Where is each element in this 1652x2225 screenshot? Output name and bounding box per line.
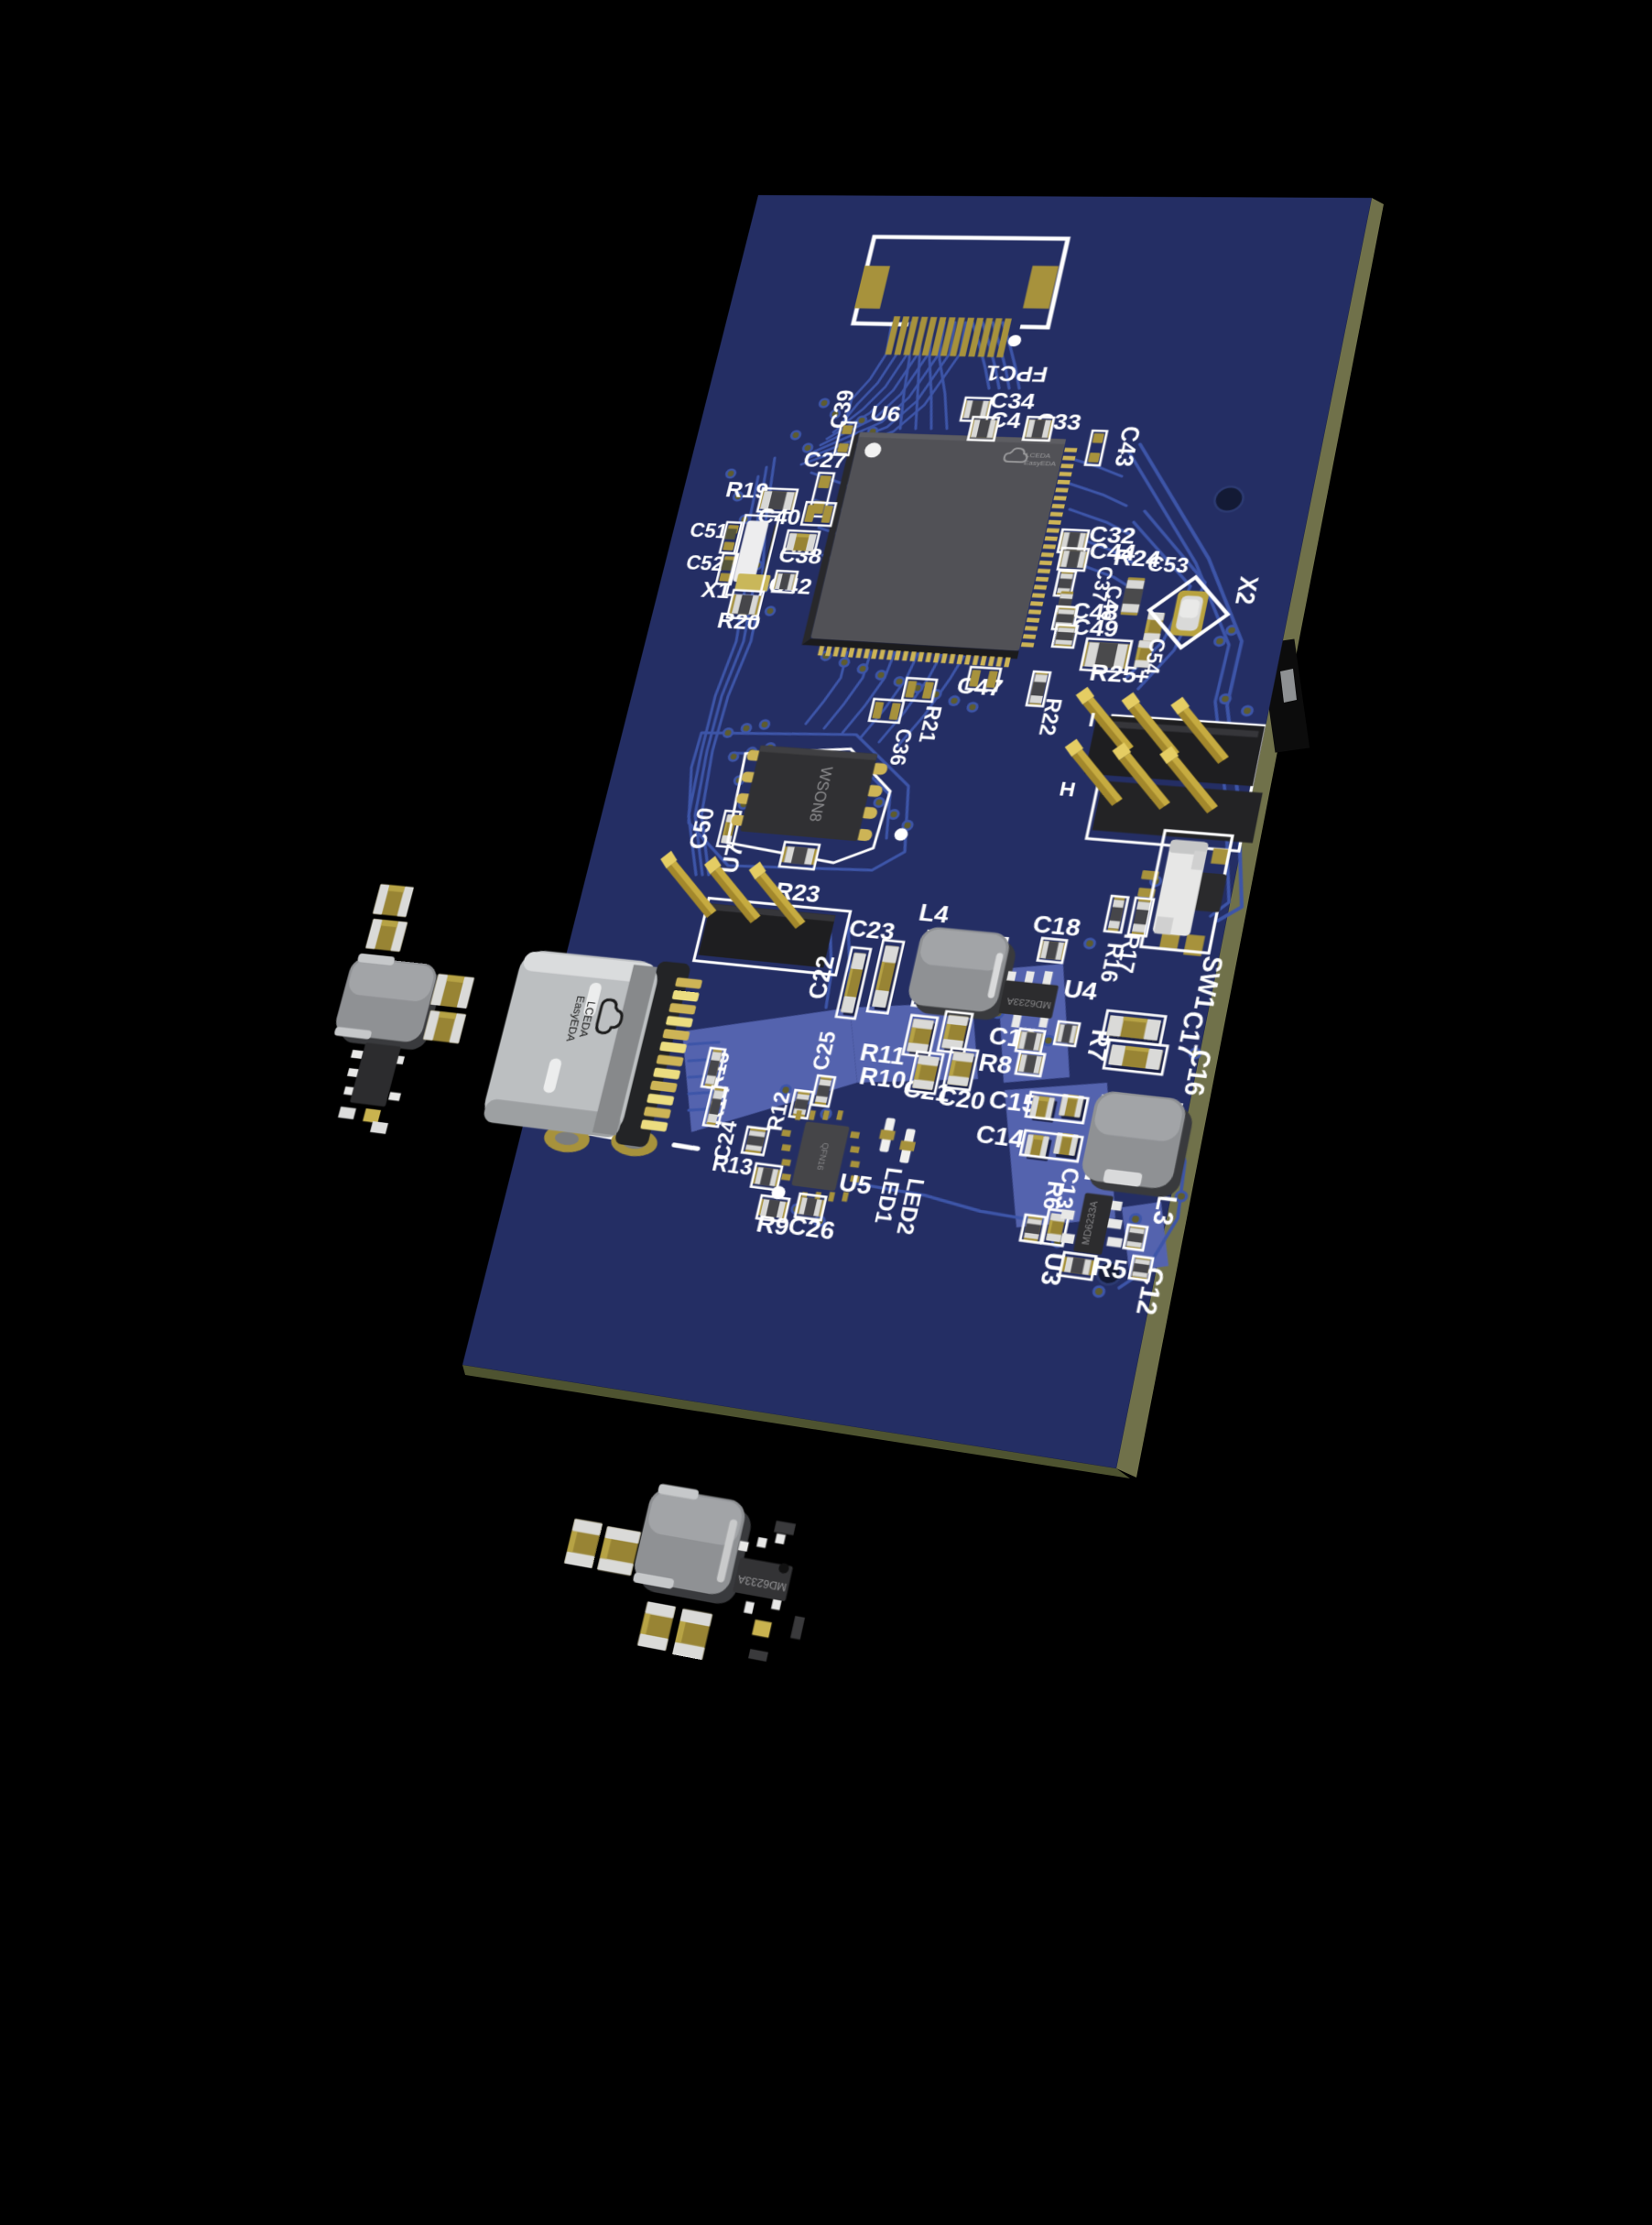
svg-text:C27: C27	[801, 447, 850, 473]
svg-text:X1: X1	[699, 577, 733, 603]
svg-text:FPC1: FPC1	[984, 361, 1050, 387]
svg-text:C14: C14	[973, 1120, 1027, 1154]
svg-text:X2: X2	[1229, 575, 1264, 605]
svg-text:C18: C18	[1030, 911, 1083, 942]
svg-text:U5: U5	[836, 1169, 875, 1201]
svg-text:U6: U6	[867, 402, 903, 427]
svg-text:EasyEDA: EasyEDA	[1023, 460, 1057, 468]
svg-text:LCEDA: LCEDA	[1025, 453, 1051, 461]
svg-text:L3: L3	[1147, 1194, 1183, 1227]
svg-text:U4: U4	[1061, 975, 1101, 1006]
svg-text:R8: R8	[976, 1048, 1015, 1079]
svg-text:R10: R10	[857, 1062, 909, 1094]
svg-text:C53: C53	[1145, 553, 1190, 578]
svg-text:R13: R13	[710, 1151, 755, 1181]
